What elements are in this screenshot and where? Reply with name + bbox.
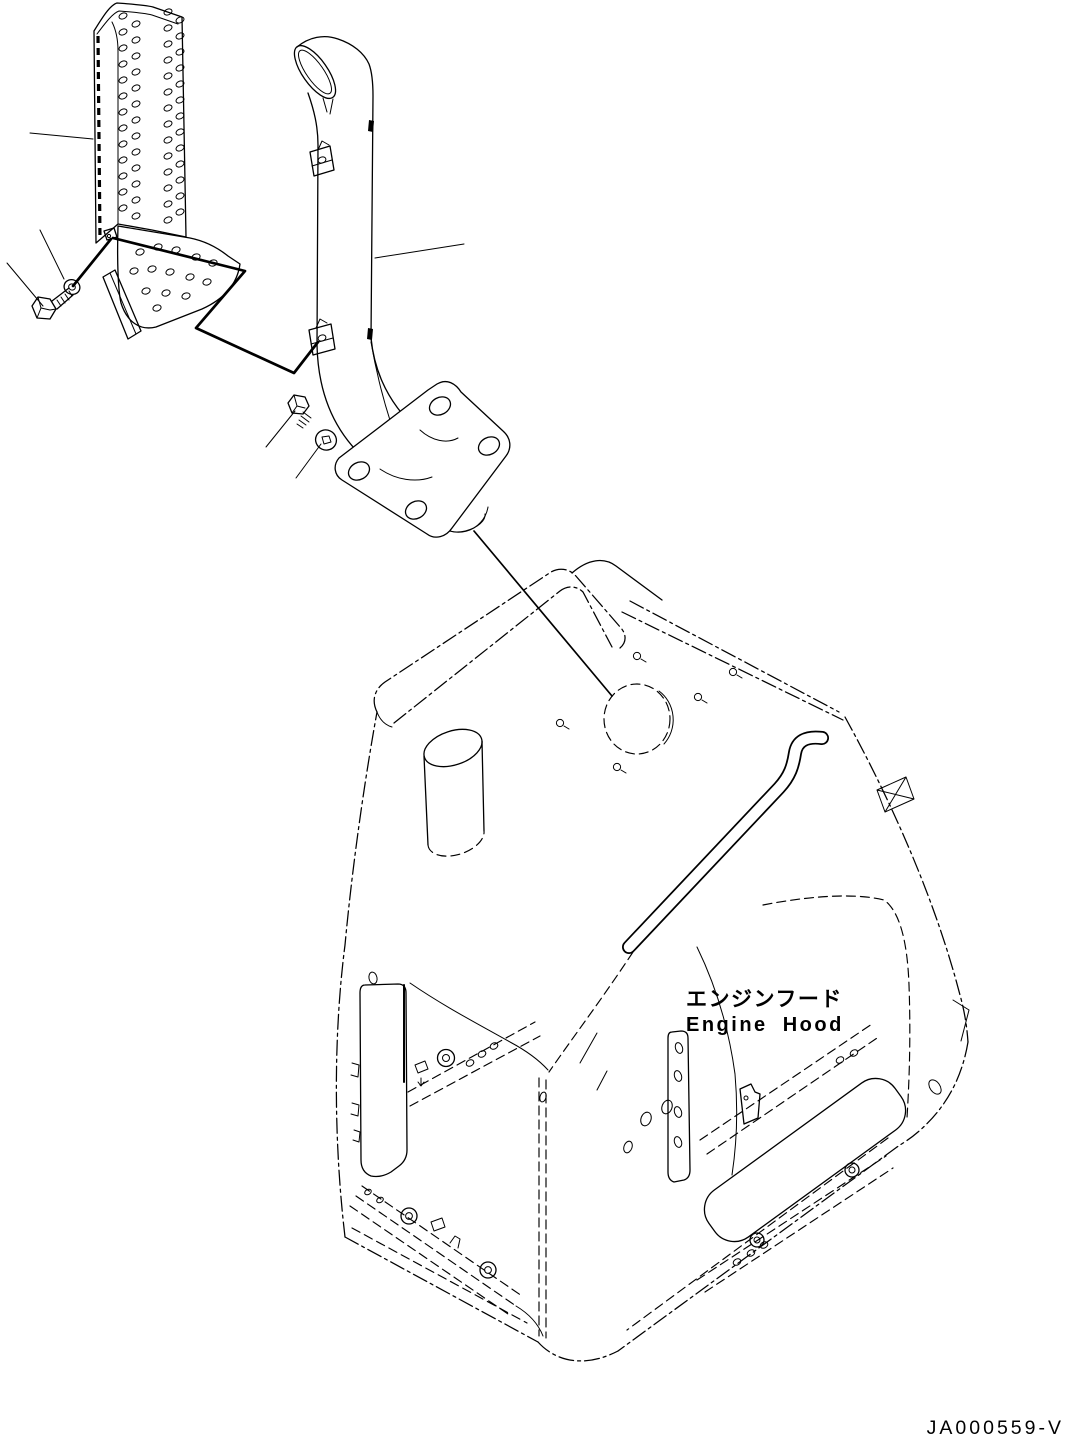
stub-top xyxy=(419,723,487,774)
perforation-hole xyxy=(161,289,171,297)
hood-front-frame-outer xyxy=(374,569,625,712)
perforation-hole xyxy=(163,184,173,193)
left-face-upper-rail xyxy=(408,1022,540,1106)
hood-bottom-left-edge xyxy=(345,1237,538,1342)
perforation-hole xyxy=(147,265,157,273)
leader-line-heat-shield xyxy=(30,133,93,139)
heat-shield xyxy=(94,3,240,339)
perforation-hole xyxy=(165,268,175,276)
perforation-hole xyxy=(163,168,173,177)
parts-diagram-page: エンジンフード Engine Hood JA000559-V xyxy=(0,0,1077,1439)
perforation-hole xyxy=(135,248,145,256)
hood-callout-en: Engine Hood xyxy=(686,1014,844,1036)
perforation-hole xyxy=(131,132,141,141)
heat-shield-flange-hatch xyxy=(98,36,100,240)
hood-top-bolts xyxy=(556,652,742,773)
perforation-hole xyxy=(131,196,141,205)
top-face-oval xyxy=(368,971,378,984)
perforation-hole xyxy=(131,180,141,189)
perforation-hole xyxy=(163,120,173,129)
stub-bottom xyxy=(428,831,484,856)
clamp-end-mark-upper xyxy=(368,120,374,132)
left-edge-tabs xyxy=(351,1063,360,1142)
mounting-bolt-lower xyxy=(288,395,311,428)
exhaust-pipe-hole xyxy=(604,684,670,754)
shield-perforations xyxy=(118,8,185,225)
perforation-hole xyxy=(175,160,185,169)
bolt-axis-line xyxy=(73,239,111,286)
leader-line-bolt-upper xyxy=(7,263,43,306)
perforation-hole xyxy=(131,212,141,221)
perforation-hole xyxy=(175,192,185,201)
perforation-hole xyxy=(163,24,173,33)
perforation-hole xyxy=(175,32,185,41)
washer-inner xyxy=(322,436,331,444)
leader-line-bolt-lower xyxy=(266,411,295,447)
perforation-hole xyxy=(175,208,185,217)
perforation-hole xyxy=(181,292,191,300)
heat-shield-fold-line xyxy=(112,22,118,224)
hood-bottom-corner xyxy=(538,1342,618,1361)
perforation-hole xyxy=(118,140,128,149)
pipe-outer-edge xyxy=(297,37,373,338)
hood-right-edge xyxy=(845,717,968,1042)
perforation-hole xyxy=(163,152,173,161)
pipe-clamp-lower xyxy=(309,324,335,355)
pipe-mouth-ticks xyxy=(323,98,333,114)
right-face-hole-strip xyxy=(668,1031,690,1182)
perforation-hole xyxy=(131,148,141,157)
clamp-position-line xyxy=(113,238,318,373)
perforation-hole xyxy=(118,76,128,85)
pipe-clamp-upper-detail xyxy=(312,141,332,166)
perforation-hole xyxy=(171,246,181,254)
perforation-hole xyxy=(118,44,128,53)
heat-shield-lower-flap xyxy=(118,226,240,328)
perforation-hole xyxy=(131,100,141,109)
perforation-hole xyxy=(152,304,162,312)
perforation-hole xyxy=(202,278,212,286)
clamp-end-mark-lower xyxy=(367,328,373,340)
perforation-hole xyxy=(118,188,128,197)
perforation-hole xyxy=(118,124,128,133)
perforation-hole xyxy=(118,60,128,69)
perforation-hole xyxy=(131,164,141,173)
left-face-opening xyxy=(360,984,407,1177)
mounting-flange xyxy=(335,382,510,538)
hood-bottom-right-edge xyxy=(618,1147,897,1351)
hood-ridge-edge-b xyxy=(622,612,843,720)
hood-front-ridge-right xyxy=(697,947,737,1175)
perforation-hole xyxy=(185,273,195,281)
perforation-hole xyxy=(163,104,173,113)
right-face-post xyxy=(740,1084,760,1124)
perforation-hole xyxy=(141,287,151,295)
bolt-hex-head xyxy=(288,395,309,414)
flap-perforations xyxy=(129,243,218,312)
hood-apex-cap xyxy=(572,561,662,600)
perforation-hole xyxy=(175,48,185,57)
perforation-hole xyxy=(163,200,173,209)
front-face-details xyxy=(539,1033,674,1154)
clamp-lower-hole xyxy=(317,334,327,342)
right-face-cutout xyxy=(695,1069,915,1251)
engine-hood xyxy=(336,561,969,1361)
mount-tab-hole xyxy=(107,234,110,237)
hood-right-corner xyxy=(897,1042,968,1147)
clamp-upper-hole xyxy=(317,156,327,164)
perforation-hole xyxy=(118,204,128,213)
frame-end-cap xyxy=(377,712,392,727)
bolt-threads xyxy=(297,412,311,428)
hood-front-ridge-left xyxy=(549,952,633,1072)
hood-bottom-right-inner xyxy=(627,1138,888,1330)
right-face-post-hole xyxy=(744,1096,748,1100)
perforation-hole xyxy=(175,176,185,185)
stub-sides xyxy=(424,741,484,845)
perforation-hole xyxy=(118,92,128,101)
bolt-head-facets xyxy=(292,395,305,413)
leader-lines xyxy=(7,133,612,696)
hood-left-edge xyxy=(336,712,377,1237)
flange-plate xyxy=(335,382,510,538)
perforation-hole xyxy=(163,72,173,81)
perforation-hole xyxy=(131,68,141,77)
hood-front-corner-edge xyxy=(539,1078,546,1338)
perforation-hole xyxy=(131,20,141,29)
perforation-hole xyxy=(163,56,173,65)
perforation-hole xyxy=(118,108,128,117)
pipe-clamp-lower-detail xyxy=(311,319,333,344)
leader-line-exhaust-stack xyxy=(375,244,464,258)
diagram-canvas: エンジンフード Engine Hood JA000559-V xyxy=(0,0,1077,1439)
perforation-hole xyxy=(118,156,128,165)
handle-mount-bracket xyxy=(877,777,914,812)
perforation-hole xyxy=(163,136,173,145)
labels: エンジンフード Engine Hood JA000559-V xyxy=(686,988,1064,1439)
perforation-hole xyxy=(163,216,173,225)
leader-line-washer-upper xyxy=(40,230,64,279)
perforation-hole xyxy=(131,36,141,45)
right-edge-oval xyxy=(926,1078,943,1097)
intake-stub xyxy=(419,723,487,857)
perforation-hole xyxy=(129,267,139,275)
hood-right-notch xyxy=(953,1000,969,1041)
pipe-mouth xyxy=(287,39,343,104)
perforation-hole xyxy=(118,172,128,181)
perforation-hole xyxy=(175,16,185,25)
perforation-hole xyxy=(118,28,128,37)
grab-handle xyxy=(629,738,822,947)
hood-callout-ja: エンジンフード xyxy=(686,988,843,1011)
heat-shield-top-edge xyxy=(97,11,178,34)
pipe-left-edge xyxy=(308,93,318,345)
left-face-lower-rail xyxy=(350,1186,543,1336)
drawing-number: JA000559-V xyxy=(927,1417,1064,1439)
perforation-hole xyxy=(163,40,173,49)
perforation-hole xyxy=(131,84,141,93)
perforation-hole xyxy=(131,52,141,61)
perforation-hole xyxy=(175,128,185,137)
perforation-hole xyxy=(118,12,128,21)
perforation-hole xyxy=(163,88,173,97)
perforation-hole xyxy=(175,144,185,153)
leader-line-hood-hole xyxy=(474,531,612,696)
leader-line-washer-lower xyxy=(296,444,321,478)
perforation-hole xyxy=(131,116,141,125)
